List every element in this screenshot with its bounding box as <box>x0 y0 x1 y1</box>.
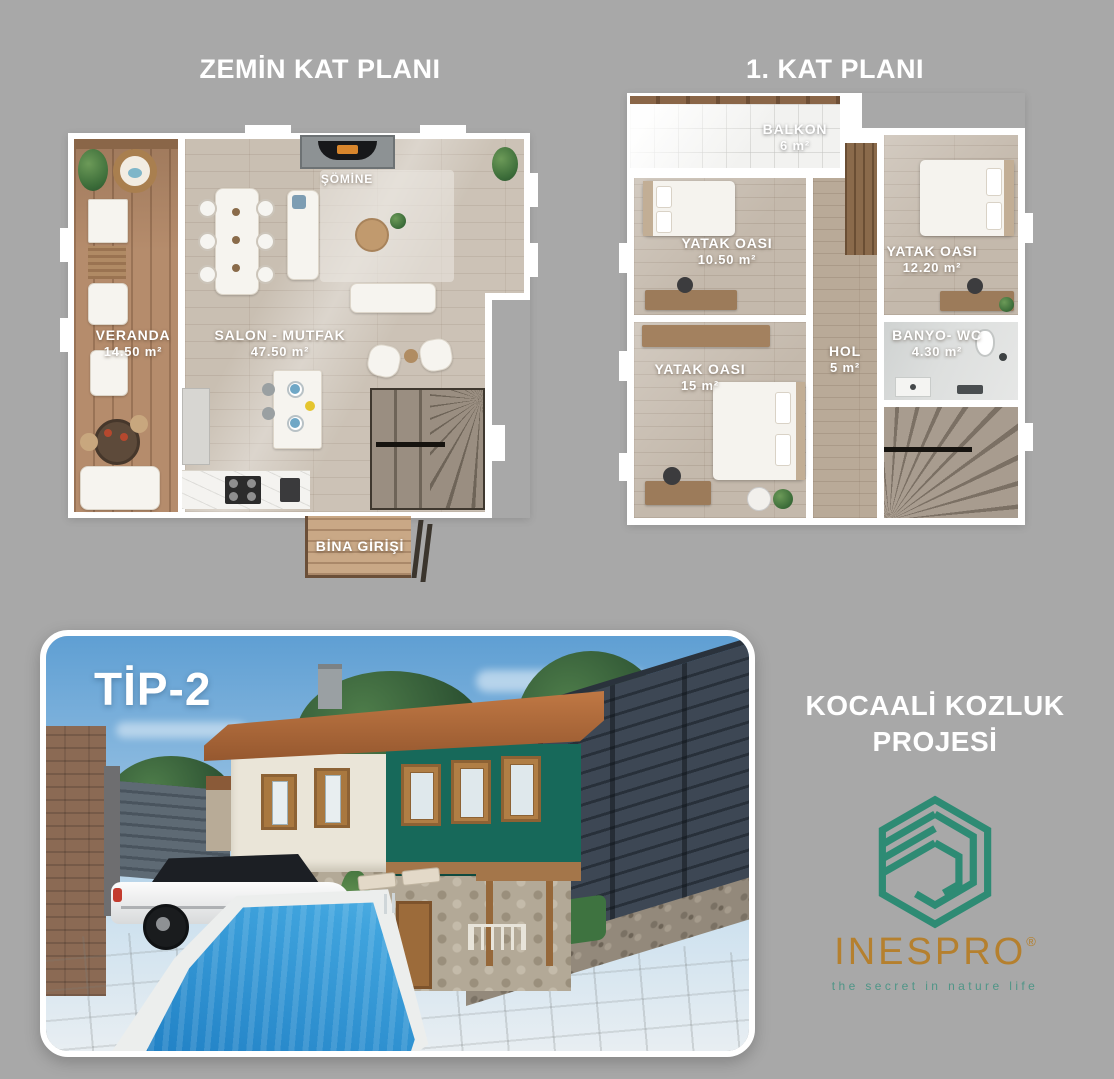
kitchen-island <box>273 370 322 449</box>
bay-window <box>401 764 441 826</box>
window <box>530 173 538 207</box>
bath-bench <box>957 385 983 394</box>
stool <box>262 407 275 420</box>
balustrade <box>468 924 526 950</box>
porch-shadow <box>420 524 432 582</box>
staircase <box>370 388 485 510</box>
coffee-table <box>355 218 389 252</box>
ground-floor-title: ZEMİN KAT PLANI <box>155 54 485 85</box>
window <box>245 125 291 133</box>
dining-chair <box>256 199 275 218</box>
desk <box>645 290 737 310</box>
stove <box>225 476 261 504</box>
slat-table <box>88 246 126 279</box>
wall <box>485 293 492 512</box>
kitchen-appliance <box>280 478 300 502</box>
inespro-hexagon-logo-icon <box>875 795 995 929</box>
plant <box>492 147 518 181</box>
side-table <box>404 349 418 363</box>
wall-shelf <box>642 325 770 347</box>
burner <box>229 492 238 501</box>
bedroom3-label: YATAK OASI 15 m² <box>655 361 746 393</box>
ground-floor-plan: VERANDA 14.50 m² SALON - MUTFAK 47.50 m²… <box>68 133 530 518</box>
fireplace-logs <box>337 145 359 154</box>
burner <box>247 492 256 501</box>
car-taillight <box>113 888 122 902</box>
pillow <box>986 202 1002 230</box>
bedroom1-label: YATAK OASI 10.50 m² <box>682 235 773 267</box>
sofa <box>287 190 319 280</box>
window <box>60 318 68 352</box>
sofa-pillow <box>292 195 306 209</box>
porch-post <box>546 881 553 966</box>
balcony-lintel <box>630 96 840 104</box>
window <box>420 125 466 133</box>
first-floor-plan: BALKON 6 m² YATAK OASI 10.50 m² YATAK OA… <box>627 93 1025 525</box>
desk-chair <box>677 277 693 293</box>
stair-rail <box>884 447 972 452</box>
round-table <box>747 487 771 511</box>
table-decor <box>232 236 240 244</box>
plant <box>999 297 1014 312</box>
fireplace <box>300 135 395 169</box>
bay-window <box>501 756 541 822</box>
window-glass <box>510 764 534 816</box>
veranda-label: VERANDA 14.50 m² <box>96 327 171 359</box>
dining-chair <box>198 199 217 218</box>
headboard <box>1004 160 1014 236</box>
burner <box>229 479 238 488</box>
first-floor-title: 1. KAT PLANI <box>690 54 980 85</box>
pillow <box>775 434 791 466</box>
bed <box>920 160 1014 236</box>
headboard <box>643 181 653 236</box>
dining-chair <box>256 232 275 251</box>
hall-label: HOL 5 m² <box>829 343 861 375</box>
plate <box>120 433 128 441</box>
exterior-cutout <box>862 93 1025 128</box>
stair-rail <box>376 442 445 447</box>
bathroom-label: BANYO- WC 4.30 m² <box>892 327 982 359</box>
wardrobe <box>845 143 877 255</box>
bed <box>643 181 735 236</box>
window <box>60 228 68 262</box>
flower-decor <box>305 401 315 411</box>
exterior-cutout <box>492 300 530 518</box>
shuttered-window <box>261 774 297 830</box>
window <box>1025 423 1033 451</box>
entrance-porch: BİNA GİRİŞİ <box>305 516 411 578</box>
headboard <box>796 382 805 480</box>
veranda-couch <box>80 466 160 510</box>
window <box>1025 213 1033 243</box>
plate <box>104 429 112 437</box>
balcony-label: BALKON 6 m² <box>763 121 828 153</box>
window <box>530 243 538 277</box>
veranda-chair <box>130 415 148 433</box>
wheel-rim <box>156 917 170 931</box>
project-title: KOCAALİ KOZLUK PROJESİ <box>775 688 1095 760</box>
logo-wordmark: INESPRO® <box>770 931 1100 974</box>
project-title-line1: KOCAALİ KOZLUK <box>775 688 1095 724</box>
stair-winders <box>884 407 1018 518</box>
staircase <box>884 407 1018 518</box>
sink-water <box>290 418 300 428</box>
desk-chair <box>967 278 983 294</box>
poster: ZEMİN KAT PLANI 1. KAT PLANI <box>0 0 1114 1079</box>
window <box>619 243 627 273</box>
pillow <box>656 211 672 233</box>
bedroom2-label: YATAK OASI 12.20 m² <box>887 243 978 275</box>
plant <box>773 489 793 509</box>
company-logo-block: INESPRO® the secret in nature life <box>770 795 1100 993</box>
porch-ledge <box>476 871 581 881</box>
window-glass <box>410 772 434 820</box>
fridge-unit <box>182 388 210 465</box>
fireplace-label: ŞÖMİNE <box>321 172 373 186</box>
table-decor <box>232 264 240 272</box>
plant <box>78 149 108 191</box>
desk-chair <box>663 467 681 485</box>
burner <box>247 479 256 488</box>
veranda-seat <box>88 283 128 325</box>
door-opening <box>485 425 505 461</box>
window <box>619 351 627 381</box>
bay-window <box>451 760 491 824</box>
logo-tagline: the secret in nature life <box>770 979 1100 993</box>
pillow <box>986 168 1002 196</box>
pool-ladder <box>384 894 387 914</box>
sofa <box>350 283 436 313</box>
veranda-lintel <box>74 139 178 149</box>
table-decor <box>232 208 240 216</box>
registered-mark: ® <box>1026 934 1036 949</box>
sink-water <box>290 384 300 394</box>
window-glass <box>325 775 341 823</box>
project-title-line2: PROJESİ <box>775 724 1095 760</box>
type-label: TİP-2 <box>94 662 211 716</box>
entrance-label: BİNA GİRİŞİ <box>316 538 404 554</box>
stair-treads <box>372 390 436 508</box>
stool <box>262 383 275 396</box>
exterior-render-photo: TİP-2 <box>40 630 755 1057</box>
shuttered-window <box>314 768 350 828</box>
desk <box>645 481 711 505</box>
pillow <box>775 392 791 424</box>
veranda-chair <box>80 433 98 451</box>
hanging-chair-cushion <box>128 168 142 178</box>
chimney <box>318 664 342 709</box>
window-glass <box>272 781 288 825</box>
pool-ladder <box>392 893 395 913</box>
faucet <box>910 384 916 390</box>
bed <box>713 382 805 480</box>
hanging-chair <box>113 149 157 193</box>
window-glass <box>460 768 484 818</box>
dining-chair <box>198 265 217 284</box>
car-wheel <box>143 904 189 950</box>
kitchen-counter <box>182 470 310 509</box>
pillow <box>656 186 672 208</box>
bathroom-vanity <box>895 377 931 397</box>
plant <box>390 213 406 229</box>
veranda-shelf <box>88 199 128 243</box>
shower-drain <box>999 353 1007 361</box>
dining-chair <box>256 265 275 284</box>
dining-chair <box>198 232 217 251</box>
salon-label: SALON - MUTFAK 47.50 m² <box>215 327 346 359</box>
stair-winders <box>430 390 483 508</box>
window <box>619 453 627 481</box>
